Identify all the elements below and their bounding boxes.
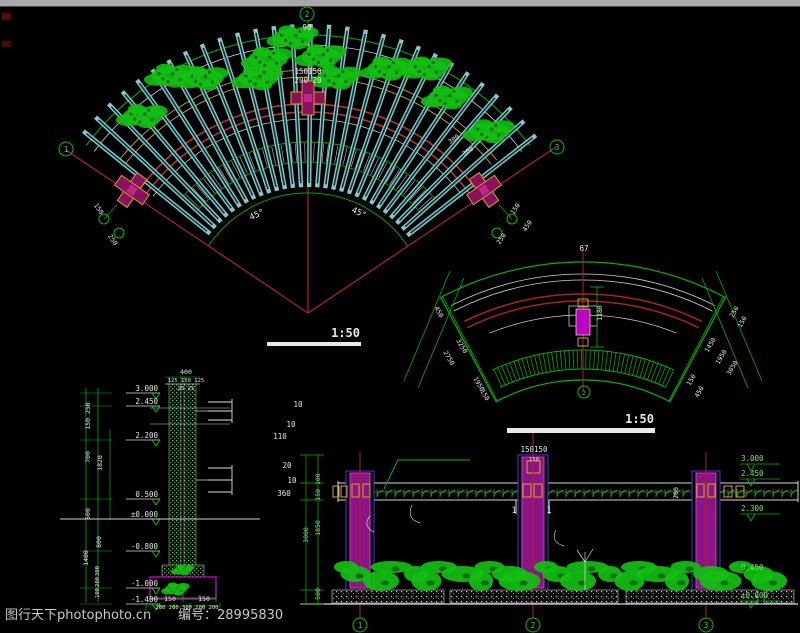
section-cut-mark: 1 [546,506,551,516]
section-note: 10 [286,420,296,429]
section-side-dim: 1820 [96,455,104,471]
top-border-bar [0,0,800,6]
elevation-left-dim: 1850 [314,520,322,536]
section-side-dim: 700 [84,451,92,463]
elevation-beam-dim: 200 [672,487,680,499]
elevation-level: 3.000 [741,454,764,463]
curve-grid-bubble-label: 2 [582,389,586,397]
elevation-center-dim: 150150 [520,445,548,454]
section-side-dim: 100 [95,588,101,598]
edge-artifact [2,13,11,20]
grid-bubble-left-label: 1 [64,145,69,154]
elevation-center-sub-dim: 150 [529,457,539,463]
fan-center-dim-2: 200 20 [294,76,322,85]
section-note: 10 [293,400,303,409]
watermark-site: 图行天下photophoto.cn [5,608,151,623]
section-level: 2.200 [135,431,158,440]
section-side-dim: 1400 [82,550,90,566]
section-cut-mark: 1 [511,506,516,516]
section-level: -0.800 [131,542,159,551]
section-top-dim: 400 [180,368,192,376]
elevation-level: 2.300 [741,504,764,513]
section-side-dim: 200 [95,577,101,587]
elevation-level: ±0.000 [741,591,769,600]
fan-scale-bar [267,342,361,346]
elevation-left-dim: 150 100 [314,473,322,500]
section-note: 360 [277,489,291,498]
section-side-dim: 300 [95,566,101,576]
section-side-dim: 800 [95,536,103,548]
elevation-scale-label: 1:50 [625,412,654,426]
curve-top-dim: 67 [579,244,588,253]
elevation-left-dim: 500 [314,588,322,600]
cad-canvas: 2 90 1 3 45° 45° 150150 200 20 150 250 1… [0,0,800,633]
section-level: 0.500 [135,490,158,499]
section-level: 3.000 [135,384,158,393]
section-side-dim: 500 [84,508,92,520]
grid-bubble-top-label: 2 [305,10,310,19]
watermark-number: 编号：28995830 [178,608,283,623]
section-side-dim: 150 250 [84,402,92,429]
section-level: -1.400 [131,595,159,604]
fan-center-dim-1: 150150 [294,67,322,76]
section-note: 20 [282,461,292,470]
elevation-left-dim: 3000 [302,527,310,543]
fan-scale-label: 1:50 [331,326,360,340]
elevation-level: 2.450 [741,469,764,478]
grid-bubble-right-label: 3 [555,143,560,152]
section-bottom-dim: 150 [198,595,210,603]
top-border-shadow [0,6,800,7]
section-top-dim: 25 25 [178,386,195,392]
elevation-grid-bubble-label: 1 [358,621,363,630]
edge-artifact [2,41,11,47]
fan-total-angle: 90 [302,23,312,32]
elevation-grid-bubble-label: 2 [531,621,536,630]
cad-drawing-stage: 2 90 1 3 45° 45° 150150 200 20 150 250 1… [0,0,800,633]
elevation-grid-bubble-label: 3 [704,621,709,630]
elevation-level: 0.450 [741,563,764,572]
curve-vertical-dim: 1180 [596,305,604,321]
section-note: 110 [273,432,287,441]
section-level: -1.000 [131,579,159,588]
section-note: 10 [287,476,297,485]
section-level: ±0.000 [131,510,159,519]
section-level: 2.450 [135,397,158,406]
section-top-dim: 125 150 125 [168,378,204,384]
elevation-scale-bar [507,428,655,433]
section-bottom-dim: 150 [164,595,176,603]
